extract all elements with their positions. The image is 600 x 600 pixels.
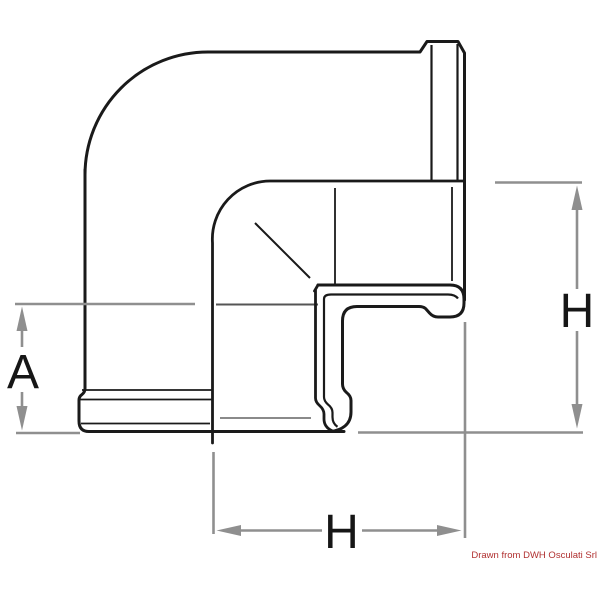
dim-h-right-arrow-up xyxy=(572,186,583,211)
flange-top-edges xyxy=(80,390,212,400)
bottom-port-left-edge-inner xyxy=(324,299,338,427)
drawing-canvas: A H H Drawn from DWH Osculati Srl xyxy=(0,0,600,600)
dim-h-bottom-arrow-left xyxy=(217,525,242,536)
bottom-port-rim-inner xyxy=(324,295,458,300)
dim-a-arrow-down xyxy=(17,406,28,431)
dim-h-right-label: H xyxy=(560,285,595,338)
dimension-h-bottom: H xyxy=(214,322,466,559)
dim-h-bottom-arrow-right xyxy=(437,525,462,536)
elbow-outer-profile xyxy=(85,42,465,301)
elbow-fitting-technical-drawing: A H H Drawn from DWH Osculati Srl xyxy=(0,0,600,600)
dim-a-label: A xyxy=(7,346,39,399)
dimension-a: A xyxy=(7,304,195,433)
credit-text: Drawn from DWH Osculati Srl xyxy=(471,550,597,561)
corner-chamfer-line xyxy=(255,223,310,278)
dim-h-bottom-label: H xyxy=(324,506,359,559)
dim-a-arrow-up xyxy=(17,307,28,332)
dim-h-right-arrow-down xyxy=(572,404,583,429)
top-port-bore-lines xyxy=(432,44,458,181)
bottom-port-rim xyxy=(318,285,464,431)
